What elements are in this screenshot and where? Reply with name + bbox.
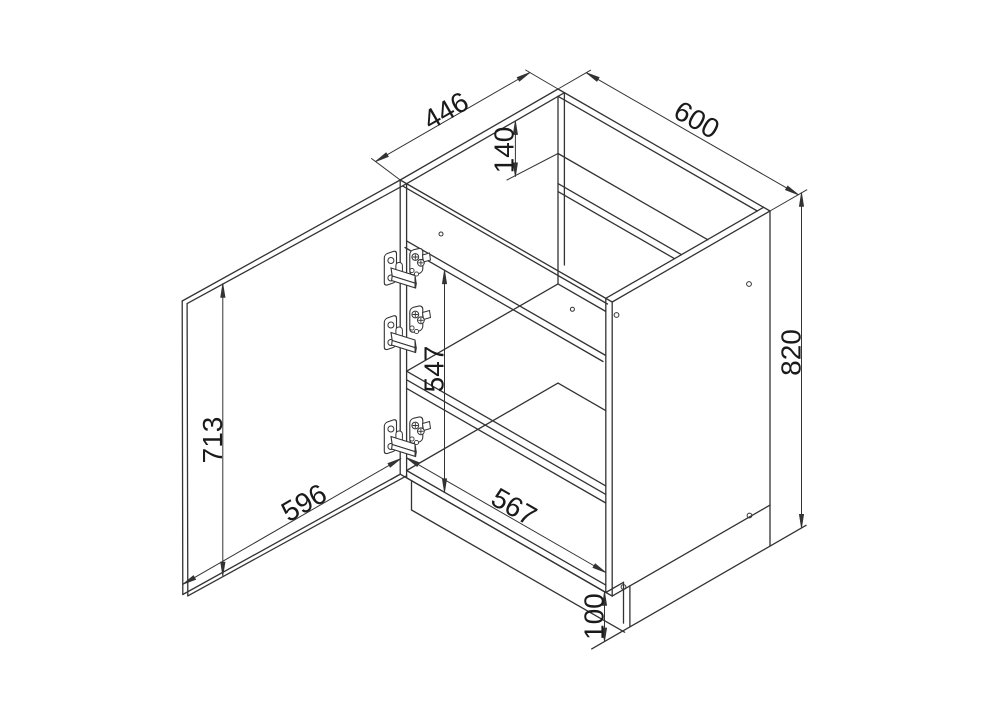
svg-text:547: 547 — [419, 346, 450, 393]
svg-text:600: 600 — [669, 95, 725, 145]
svg-text:140: 140 — [489, 127, 520, 174]
svg-text:596: 596 — [276, 478, 332, 528]
svg-text:446: 446 — [418, 86, 474, 136]
svg-text:713: 713 — [197, 417, 228, 464]
svg-text:820: 820 — [775, 329, 806, 376]
svg-text:100: 100 — [578, 593, 609, 640]
svg-text:567: 567 — [486, 482, 542, 532]
